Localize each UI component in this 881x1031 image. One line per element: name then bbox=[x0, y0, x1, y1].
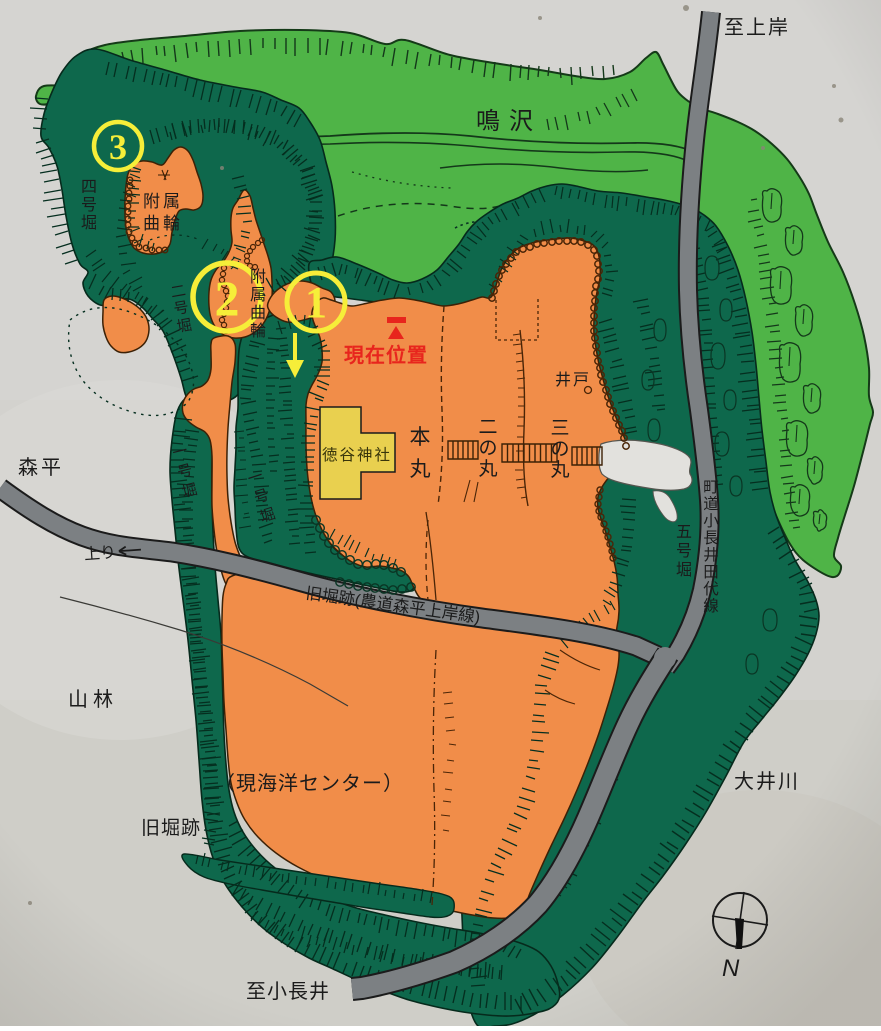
svg-text:三: 三 bbox=[550, 418, 569, 439]
svg-text:N: N bbox=[722, 955, 740, 982]
svg-text:井: 井 bbox=[703, 546, 719, 564]
svg-text:徳谷神社: 徳谷神社 bbox=[322, 446, 392, 464]
svg-text:の: の bbox=[550, 439, 569, 460]
svg-text:曲: 曲 bbox=[250, 304, 266, 322]
svg-text:森平: 森平 bbox=[18, 456, 64, 479]
svg-text:曲輪: 曲輪 bbox=[143, 214, 183, 233]
svg-text:旧堀跡: 旧堀跡 bbox=[141, 817, 201, 839]
svg-text:丸: 丸 bbox=[478, 458, 497, 480]
svg-text:大井川: 大井川 bbox=[734, 770, 800, 793]
svg-text:2: 2 bbox=[215, 270, 240, 326]
svg-text:四: 四 bbox=[81, 179, 97, 196]
svg-text:号: 号 bbox=[676, 542, 692, 560]
svg-text:線: 線 bbox=[703, 597, 719, 615]
svg-text:堀: 堀 bbox=[676, 561, 692, 579]
svg-text:二: 二 bbox=[478, 417, 497, 438]
svg-text:号: 号 bbox=[81, 196, 97, 214]
svg-text:長: 長 bbox=[703, 530, 719, 547]
svg-text:現在位置: 現在位置 bbox=[344, 343, 428, 367]
svg-text:堀: 堀 bbox=[175, 317, 193, 336]
svg-text:3: 3 bbox=[109, 127, 127, 167]
svg-text:町: 町 bbox=[703, 479, 719, 496]
svg-text:田: 田 bbox=[703, 564, 719, 581]
svg-text:丸: 丸 bbox=[550, 459, 569, 481]
svg-text:附: 附 bbox=[250, 268, 266, 286]
svg-text:本: 本 bbox=[410, 426, 431, 449]
svg-text:道: 道 bbox=[703, 495, 719, 513]
svg-text:上り: 上り bbox=[83, 543, 116, 563]
svg-text:1: 1 bbox=[305, 278, 327, 327]
svg-text:代: 代 bbox=[703, 580, 719, 598]
svg-text:属: 属 bbox=[250, 287, 266, 304]
svg-text:号: 号 bbox=[172, 299, 190, 318]
svg-text:堀: 堀 bbox=[81, 214, 97, 232]
svg-text:鳴沢: 鳴沢 bbox=[476, 108, 542, 135]
svg-text:輪: 輪 bbox=[250, 322, 266, 340]
svg-text:山林: 山林 bbox=[68, 688, 118, 711]
svg-text:井戸: 井戸 bbox=[555, 371, 591, 389]
svg-text:附属: 附属 bbox=[143, 192, 183, 211]
svg-text:五: 五 bbox=[676, 524, 692, 541]
svg-text:小: 小 bbox=[703, 512, 719, 530]
svg-text:至小長井: 至小長井 bbox=[246, 980, 330, 1003]
svg-text:の: の bbox=[478, 438, 497, 459]
svg-text:（現海洋センター）: （現海洋センター） bbox=[215, 772, 404, 795]
svg-text:丸: 丸 bbox=[410, 458, 431, 481]
svg-text:至上岸: 至上岸 bbox=[724, 16, 790, 39]
